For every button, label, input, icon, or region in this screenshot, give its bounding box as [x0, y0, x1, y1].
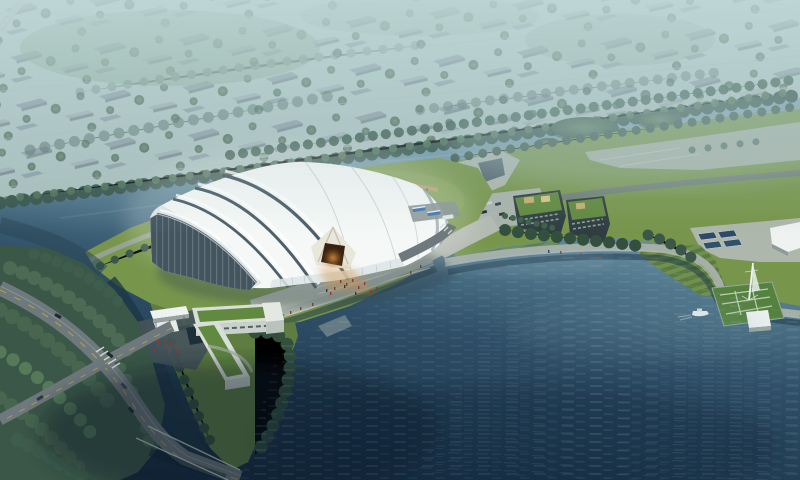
end-block-wall [266, 320, 284, 334]
rendering-canvas: Dusk aerial architectural rendering: a l… [0, 0, 800, 480]
entrance-glow [324, 249, 342, 267]
haze-overlay [0, 0, 800, 235]
aerial-rendering: Dusk aerial architectural rendering: a l… [0, 0, 800, 480]
